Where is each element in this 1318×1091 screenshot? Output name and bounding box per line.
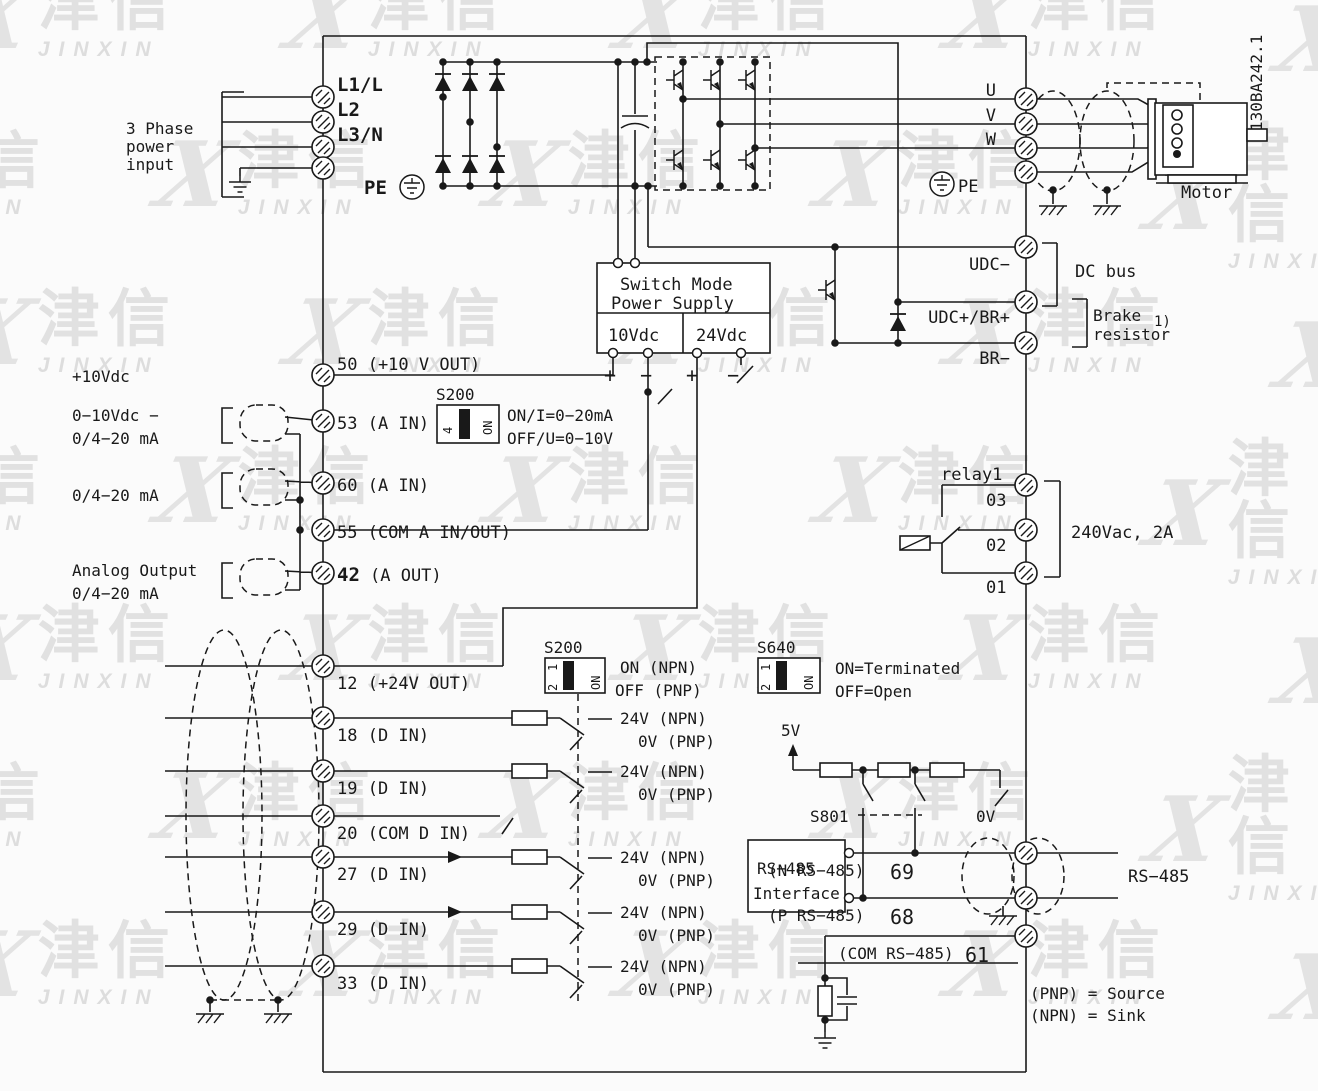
label-60: 0/4−20 mA (72, 486, 159, 505)
label-motor: Motor (1181, 183, 1232, 203)
s640-line2: OFF=Open (835, 682, 912, 701)
label-t61: (COM RS−485) (838, 944, 954, 963)
s640-name: S640 (757, 638, 796, 657)
label-t27: 27 (D IN) (337, 865, 429, 885)
s200-analog-pos: 4 (441, 427, 455, 434)
input-earth (229, 176, 251, 192)
s200-analog-on: ON (481, 421, 495, 435)
terminal-01 (1015, 562, 1037, 584)
label-v: V (986, 106, 996, 126)
wiring-diagram-page: X津信JINXINX津信JINXINX津信JINXINX津信JINXINX津信J… (0, 0, 1318, 1091)
smps-10v: 10Vdc (608, 326, 659, 346)
label-t68: (P RS−485) (768, 906, 864, 925)
s200-digital-pos1: 1 (546, 664, 560, 671)
terminal-pe-in (312, 157, 334, 179)
label-t69: (N RS−485) (768, 861, 864, 880)
pullup-resistor (878, 763, 910, 777)
label-53b: 0/4−20 mA (72, 429, 159, 448)
power-input-line1: 3 Phase (126, 119, 193, 138)
smps-title2: Power Supply (611, 294, 734, 314)
label-w: W (986, 130, 997, 150)
ports (609, 259, 854, 903)
s200-digital-line2: OFF (PNP) (615, 681, 702, 700)
din18-npn: 24V (NPN) (620, 709, 707, 728)
s200-digital-on: ON (589, 676, 603, 690)
label-t68-num: 68 (890, 905, 914, 929)
brake-igbt (818, 280, 835, 300)
label-t33: 33 (D IN) (337, 974, 429, 994)
terminal-03 (1015, 474, 1037, 496)
terminal-42 (312, 562, 334, 584)
terminal-29 (312, 901, 334, 923)
label-u: U (986, 81, 996, 101)
label-dc-bus: DC bus (1075, 262, 1136, 282)
din19-pnp: 0V (PNP) (638, 785, 715, 804)
footer-npn: (NPN) = Sink (1030, 1006, 1146, 1025)
label-udc-plus: UDC+/BR+ (928, 308, 1010, 328)
label-l2: L2 (337, 99, 360, 121)
pe-symbol-output (930, 172, 954, 196)
resistor (512, 711, 547, 725)
labels: 3 Phase power input L1/L L2 L3/N PE Swit… (72, 35, 1266, 1025)
terminal-u (1015, 88, 1037, 110)
label-l1: L1/L (337, 74, 383, 96)
power-input-line3: input (126, 155, 174, 174)
label-t42-num: 42 (337, 564, 360, 586)
pe-symbol-input (400, 175, 424, 199)
control-cable-shield (186, 630, 262, 1000)
label-t69-num: 69 (890, 860, 914, 884)
label-udc-minus: UDC− (969, 255, 1010, 275)
terminal-v (1015, 113, 1037, 135)
relay-02: 02 (986, 536, 1006, 556)
label-s801: S801 (810, 807, 849, 826)
label-t60: 60 (A IN) (337, 476, 429, 496)
resistor (512, 764, 547, 778)
s200-analog-line2: OFF/U=0−10V (507, 429, 613, 448)
terminal-02 (1015, 519, 1037, 541)
terminal-br-minus (1015, 332, 1037, 354)
schematic-svg: 3 Phase power input L1/L L2 L3/N PE Swit… (0, 0, 1318, 1091)
s640-on: ON (802, 676, 816, 690)
label-5v: 5V (781, 721, 801, 740)
5v-arrow (788, 744, 798, 756)
terminal-udc-minus (1015, 236, 1037, 258)
smps-minus2: − (727, 363, 739, 387)
rs485-box-line2: Interface (753, 884, 840, 903)
terminal-53 (312, 410, 334, 432)
terminal-33 (312, 955, 334, 977)
label-t18: 18 (D IN) (337, 726, 429, 746)
din33-npn: 24V (NPN) (620, 957, 707, 976)
s200-analog-name: S200 (436, 385, 475, 404)
resistor (512, 959, 547, 973)
igbt (666, 70, 683, 90)
label-plus10vdc: +10Vdc (72, 367, 130, 386)
label-t50: 50 (+10 V OUT) (337, 355, 480, 375)
din27-npn: 24V (NPN) (620, 848, 707, 867)
terminal-l3 (312, 136, 334, 158)
din29-npn: 24V (NPN) (620, 903, 707, 922)
motor-base (1168, 175, 1236, 183)
din27-pnp: 0V (PNP) (638, 871, 715, 890)
label-t20: 20 (COM D IN) (337, 824, 470, 844)
resistor (512, 850, 547, 864)
s200-analog-line1: ON/I=0−20mA (507, 406, 613, 425)
terminal-27 (312, 846, 334, 868)
relay-name: relay1 (941, 465, 1002, 485)
label-t53: 53 (A IN) (337, 414, 429, 434)
terminal-l2 (312, 111, 334, 133)
terminal-12 (312, 655, 334, 677)
label-brake1: Brake (1093, 306, 1141, 325)
terminal-60 (312, 472, 334, 494)
relay-rating: 240Vac, 2A (1071, 523, 1173, 543)
label-t19: 19 (D IN) (337, 779, 429, 799)
resistor (512, 905, 547, 919)
din33-pnp: 0V (PNP) (638, 980, 715, 999)
footer-pnp: (PNP) = Source (1030, 984, 1165, 1003)
label-t55: 55 (COM A IN/OUT) (337, 523, 511, 543)
relay-03: 03 (986, 491, 1006, 511)
smps-plus2: + (686, 363, 698, 387)
pullup-resistor (820, 763, 852, 777)
label-53a: 0−10Vdc − (72, 406, 159, 425)
smps-title1: Switch Mode (620, 275, 733, 295)
doc-number: 130BA242.1 (1247, 35, 1266, 131)
terminal-udc-plus (1015, 291, 1037, 313)
terminal-w (1015, 137, 1037, 159)
brake-diode (890, 314, 906, 331)
terminal-61 (1015, 925, 1037, 947)
din29-arrow (448, 906, 462, 918)
s640-pos1: 1 (759, 664, 773, 671)
smps-minus1: − (640, 363, 652, 387)
terminal-pe-out (1015, 161, 1037, 183)
rs485-cable-shield (962, 838, 1014, 914)
s200-digital-name: S200 (544, 638, 583, 657)
terminal-55 (312, 519, 334, 541)
label-t42-rest: (A OUT) (370, 566, 442, 586)
s200-digital-pos2: 2 (546, 684, 560, 691)
terminal-20 (312, 805, 334, 827)
smps-24v: 24Vdc (696, 326, 747, 346)
terminal-l1 (312, 86, 334, 108)
rc-resistor (818, 986, 832, 1016)
terminal-18 (312, 707, 334, 729)
label-l3: L3/N (337, 124, 383, 146)
s200-digital-line1: ON (NPN) (620, 658, 697, 677)
rc-earth (814, 1032, 836, 1048)
relay-01: 01 (986, 578, 1006, 598)
terminal-19 (312, 760, 334, 782)
label-42b: 0/4−20 mA (72, 584, 159, 603)
din18-pnp: 0V (PNP) (638, 732, 715, 751)
label-rs485-right: RS−485 (1128, 867, 1189, 887)
label-t29: 29 (D IN) (337, 920, 429, 940)
terminal-68 (1015, 887, 1037, 909)
label-pe-out: PE (958, 177, 978, 197)
power-input-line2: power (126, 137, 175, 156)
label-pe-in: PE (364, 177, 387, 199)
s640-pos2: 2 (759, 684, 773, 691)
pullup-resistor (930, 763, 964, 777)
din29-pnp: 0V (PNP) (638, 926, 715, 945)
terminal-50 (312, 364, 334, 386)
label-0v: 0V (976, 807, 996, 826)
din27-arrow (448, 851, 462, 863)
shield-ground (1039, 206, 1067, 215)
rectifier-diode (435, 74, 451, 91)
label-42a: Analog Output (72, 561, 197, 580)
label-br-minus: BR− (979, 349, 1010, 369)
s640-line1: ON=Terminated (835, 659, 960, 678)
smps-plus1: + (604, 363, 616, 387)
din19-npn: 24V (NPN) (620, 762, 707, 781)
label-brake-note: 1) (1154, 314, 1171, 330)
label-t12: 12 (+24V OUT) (337, 674, 470, 694)
terminal-69 (1015, 842, 1037, 864)
label-t61-num: 61 (965, 943, 989, 967)
